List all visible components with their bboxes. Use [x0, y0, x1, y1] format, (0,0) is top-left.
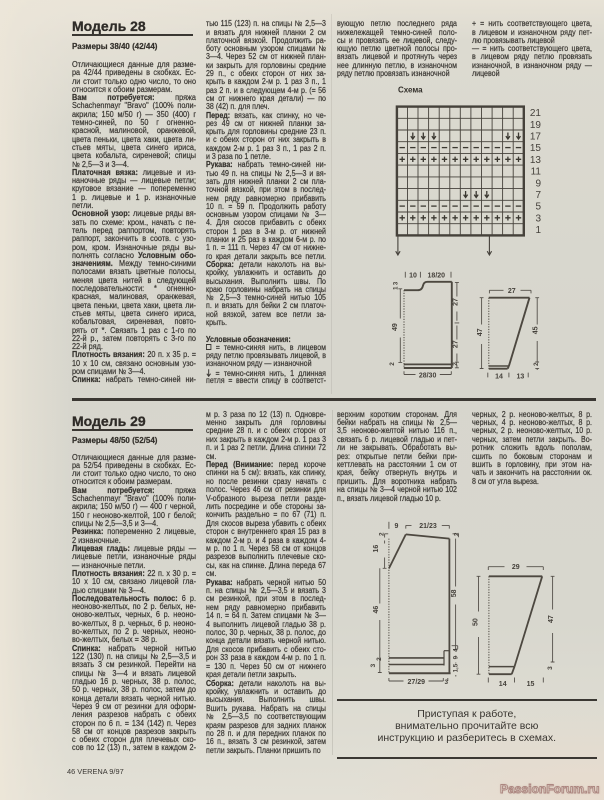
- svg-text:46: 46: [373, 606, 380, 614]
- svg-text:27: 27: [508, 288, 516, 295]
- svg-text:49: 49: [392, 323, 399, 331]
- svg-text:14: 14: [495, 374, 503, 381]
- svg-text:27: 27: [452, 298, 459, 306]
- svg-text:3: 3: [547, 666, 554, 670]
- svg-text:50: 50: [473, 618, 480, 626]
- svg-text:2: 2: [452, 362, 459, 366]
- svg-text:3: 3: [393, 281, 399, 285]
- svg-text:15: 15: [530, 143, 542, 154]
- svg-text:Схема: Схема: [398, 86, 423, 95]
- svg-text:9: 9: [395, 523, 399, 530]
- svg-text:58: 58: [451, 589, 458, 597]
- svg-text:3: 3: [445, 679, 449, 686]
- svg-text:29: 29: [512, 564, 520, 571]
- svg-text:9: 9: [535, 178, 541, 189]
- svg-text:14: 14: [499, 681, 507, 688]
- svg-text:2: 2: [389, 362, 396, 366]
- svg-text:13: 13: [517, 374, 525, 381]
- svg-text:2: 2: [454, 532, 461, 536]
- svg-text:27: 27: [452, 340, 459, 348]
- svg-text:2: 2: [379, 532, 386, 536]
- svg-text:13: 13: [530, 155, 542, 166]
- svg-text:21: 21: [530, 108, 542, 119]
- svg-text:1: 1: [393, 286, 399, 290]
- svg-text:11: 11: [531, 167, 542, 178]
- svg-text:7: 7: [535, 190, 541, 201]
- svg-text:5: 5: [535, 202, 541, 213]
- svg-text:18/20: 18/20: [428, 272, 446, 279]
- svg-text:10: 10: [409, 272, 417, 279]
- svg-text:19: 19: [530, 120, 542, 131]
- svg-text:45: 45: [532, 326, 539, 334]
- svg-text:2: 2: [376, 657, 383, 661]
- svg-text:47: 47: [477, 328, 484, 336]
- svg-text:3: 3: [370, 663, 377, 667]
- svg-text:1,5: 1,5: [453, 663, 460, 672]
- svg-text:21/23: 21/23: [419, 523, 437, 530]
- svg-text:27/29: 27/29: [408, 679, 426, 686]
- svg-text:28/30: 28/30: [419, 372, 437, 379]
- svg-text:3: 3: [535, 213, 541, 224]
- svg-text:15: 15: [527, 681, 535, 688]
- svg-text:1: 1: [535, 225, 541, 236]
- svg-text:47: 47: [548, 615, 555, 623]
- svg-text:4: 4: [453, 648, 460, 652]
- svg-text:17: 17: [530, 132, 542, 143]
- svg-text:9: 9: [453, 655, 460, 659]
- svg-text:16: 16: [373, 545, 380, 553]
- svg-text:2: 2: [533, 362, 540, 366]
